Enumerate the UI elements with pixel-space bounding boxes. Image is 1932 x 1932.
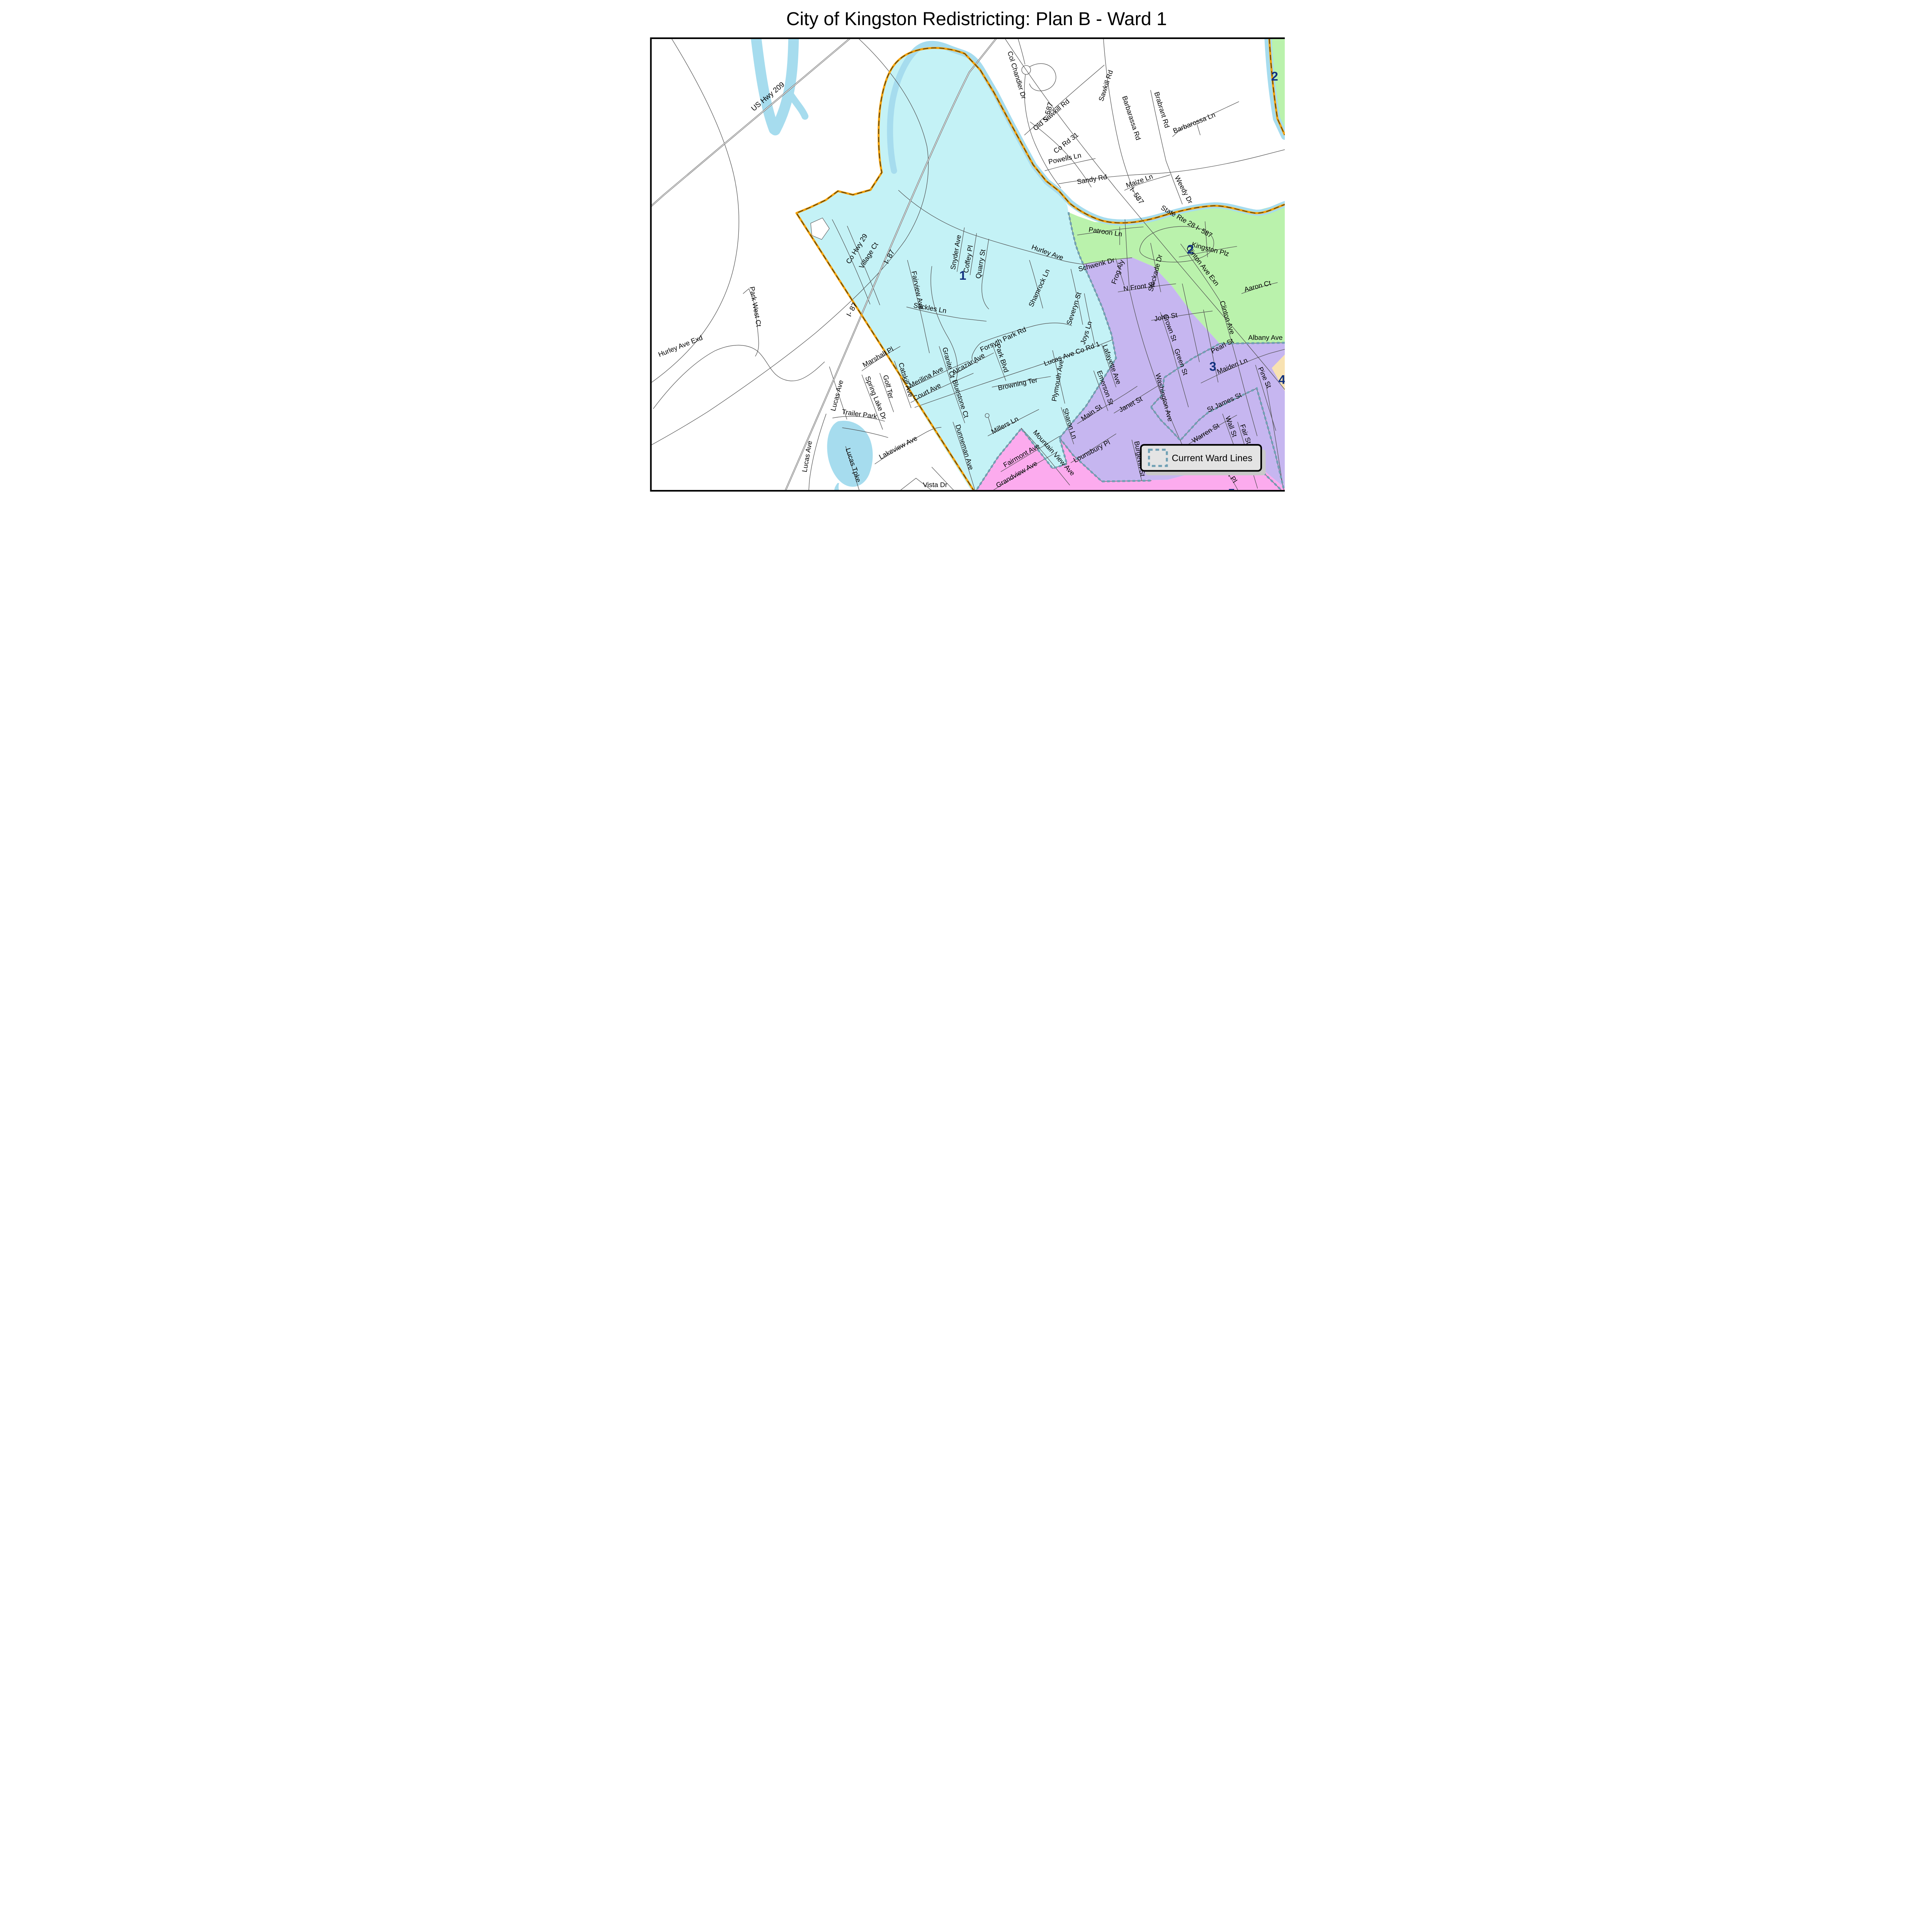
road-line	[653, 345, 825, 408]
us-hwy-209-road-inner	[647, 39, 850, 211]
road-label: Vista Dr	[923, 481, 947, 489]
pond-hook	[790, 94, 805, 116]
road-label: Weedy Dr	[1173, 174, 1194, 205]
road-label: Co Rd 31	[1052, 131, 1080, 155]
ward-number: 2	[1187, 242, 1194, 257]
map-title: City of Kingston Redistricting: Plan B -…	[786, 9, 1167, 29]
road-label: Col Chandler Dr	[1006, 50, 1028, 100]
ward-number: 3	[1209, 359, 1216, 374]
map-page: City of Kingston Redistricting: Plan B -…	[647, 0, 1285, 492]
road-label: Hurley Ave Exd	[657, 333, 704, 358]
road-label: Old Sawkill Rd	[1032, 97, 1071, 132]
ward-number: 1	[959, 268, 966, 282]
road-line	[1018, 39, 1025, 64]
map-canvas[interactable]: US Hwy 209Col Chandler DrI- 587Old Sawki…	[647, 39, 1285, 492]
ward-number: 4	[1279, 372, 1285, 386]
road-label: Barbarossa Ln	[1172, 111, 1216, 135]
legend-label: Current Ward Lines	[1172, 453, 1252, 463]
road-label: Sawkill Rd	[1097, 69, 1114, 102]
ward-number: 2	[1271, 69, 1278, 83]
road-label: Lakeview Ave	[878, 434, 919, 461]
road-label: Albany Ave	[1248, 334, 1282, 342]
road-label: Lucas Ave	[801, 440, 814, 473]
road-line	[647, 39, 739, 386]
road-label: Park West Ct	[748, 286, 763, 327]
road-label: Sandy Rd	[1077, 173, 1108, 185]
road-label: I- 587	[1128, 186, 1145, 206]
road-label: Brabrant Rd	[1153, 91, 1171, 129]
road-line	[1029, 64, 1056, 91]
legend[interactable]: Current Ward Lines	[1141, 445, 1265, 475]
redistricting-map: City of Kingston Redistricting: Plan B -…	[647, 0, 1285, 492]
road-label: Barbarassa Rd	[1121, 95, 1142, 141]
road-label: Golf Ter	[881, 374, 895, 399]
road-label: Powells Ln	[1048, 151, 1082, 166]
